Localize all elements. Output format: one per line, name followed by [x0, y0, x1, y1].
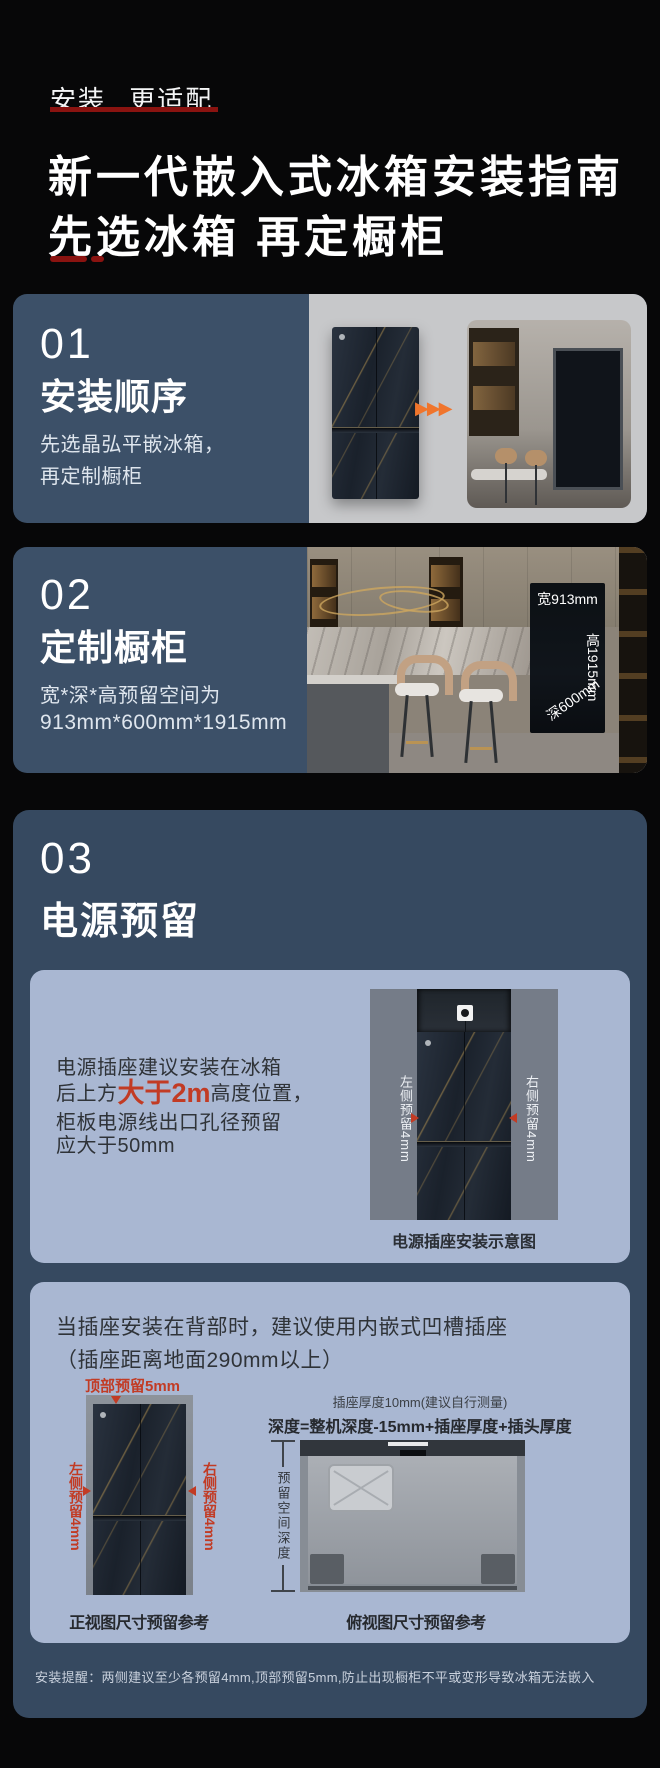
power-socket-icon	[457, 1005, 473, 1021]
top-view-image	[300, 1440, 525, 1592]
bar-stool	[495, 448, 517, 504]
section-01-title: 安装顺序	[40, 368, 188, 420]
stool-leg	[535, 465, 537, 505]
bar-stool	[525, 450, 547, 506]
brand-logo-icon	[425, 1040, 431, 1046]
wine-cabinet	[469, 328, 519, 436]
top-arrow-icon	[111, 1396, 121, 1404]
left-arrow-icon	[83, 1486, 91, 1496]
measure-cap	[271, 1590, 295, 1592]
hinge-block	[481, 1554, 515, 1584]
power-socket-card: 电源插座建议安装在冰箱 后上方大于2m高度位置， 柜板电源线出口孔径预留 应大于…	[30, 970, 630, 1263]
wine-shelf-glow	[473, 342, 515, 366]
installation-order-illustration: ▶▶▶	[309, 294, 647, 523]
fridge-niche: 宽913mm 高1915mm 深600mm	[530, 583, 605, 733]
page-title-line2: 先选冰箱 再定橱柜	[48, 201, 448, 265]
brand-logo-icon	[339, 334, 345, 340]
wine-shelf-glow	[431, 565, 460, 587]
right-clearance-label: 右侧预留4mm	[200, 1462, 220, 1551]
custom-cabinet-photo: 宽913mm 高1915mm 深600mm	[307, 547, 647, 773]
cabinet-frame	[86, 1395, 193, 1595]
installation-reminder: 安装提醒：两侧建议至少各预留4mm,顶部预留5mm,防止出现橱柜不平或变形导致冰…	[35, 1667, 595, 1686]
socket-text-highlight: 大于2m	[118, 1078, 211, 1108]
left-clearance-label: 左侧预留4mm	[66, 1462, 86, 1551]
front-view-caption: 正视图尺寸预留参考	[69, 1609, 209, 1633]
depth-measure: 预留空间深度	[266, 1440, 300, 1592]
stool-leg	[400, 695, 408, 757]
socket-install-diagram: 左侧预留4mm 右侧预留4mm	[370, 989, 558, 1220]
recess-heading-line1: 当插座安装在背部时，建议使用内嵌式凹槽插座	[56, 1311, 508, 1341]
socket-text-line2: 后上方大于2m高度位置，	[56, 1071, 313, 1110]
stool-leg	[464, 701, 472, 763]
title-dash-short	[91, 256, 104, 262]
section-02-body-line1: 宽*深*高预留空间为	[40, 679, 221, 708]
depth-formula: 深度=整机深度-15mm+插座厚度+插头厚度	[268, 1413, 598, 1437]
forward-arrows-icon: ▶▶▶	[415, 398, 451, 419]
right-arrow-icon	[188, 1486, 196, 1496]
recess-heading-line2: （插座距离地面290mm以上）	[56, 1344, 344, 1374]
stool-footrest	[406, 741, 428, 744]
section-02-card: 02 定制橱柜 宽*深*高预留空间为 913mm*600mm*1915mm	[13, 547, 647, 773]
right-arrow-icon	[509, 1113, 517, 1123]
stool-leg	[425, 695, 433, 757]
kitchen-island	[307, 684, 389, 773]
measure-line	[282, 1442, 284, 1467]
top-clearance-label: 顶部预留5mm	[85, 1375, 180, 1396]
socket-text-line2-pre: 后上方	[56, 1083, 118, 1105]
right-clearance-label: 右侧预留4mm	[522, 1075, 541, 1163]
section-01-card: 01 安装顺序 先选晶弘平嵌冰箱， 再定制橱柜 ▶▶▶	[13, 294, 647, 523]
page-title-line1: 新一代嵌入式冰箱安装指南	[48, 141, 624, 205]
socket-text-line2-post: 高度位置，	[211, 1083, 314, 1105]
stool-seat	[395, 683, 439, 696]
kitchen-photo	[467, 320, 631, 508]
stool-seat	[525, 450, 547, 466]
island-countertop	[307, 675, 403, 684]
section-02-number: 02	[40, 571, 94, 620]
socket-text-line4: 应大于50mm	[56, 1129, 175, 1158]
stool-leg	[505, 463, 507, 503]
socket-plate	[388, 1442, 428, 1446]
fridge-image	[417, 1032, 511, 1220]
stool-footrest	[470, 747, 492, 750]
installation-guide-page: 安装 更适配 新一代嵌入式冰箱安装指南 先选冰箱 再定橱柜 01 安装顺序 先选…	[0, 0, 660, 1768]
socket-cover-plate	[328, 1464, 394, 1512]
eyebrow-underline	[50, 107, 218, 112]
section-01-body-line2: 再定制橱柜	[40, 460, 143, 489]
section-03-title: 电源预留	[40, 890, 200, 945]
wine-shelf-glow	[312, 565, 336, 587]
recessed-socket-card: 当插座安装在背部时，建议使用内嵌式凹槽插座 （插座距离地面290mm以上） 顶部…	[30, 1282, 630, 1643]
section-01-number: 01	[40, 320, 94, 369]
top-view-caption: 俯视图尺寸预留参考	[346, 1609, 486, 1633]
wine-shelf-glow	[473, 386, 515, 410]
stool-seat	[495, 448, 517, 464]
title-dash-long	[50, 256, 87, 262]
left-arrow-icon	[411, 1113, 419, 1123]
tall-display-cabinet	[619, 547, 647, 773]
hinge-block	[310, 1554, 344, 1584]
wine-shelf	[310, 559, 338, 627]
measure-line	[282, 1565, 284, 1590]
section-02-title: 定制橱柜	[40, 619, 188, 671]
front-edge-bar	[308, 1586, 517, 1590]
section-01-body-line1: 先选晶弘平嵌冰箱，	[40, 428, 225, 457]
niche-width-label: 宽913mm	[530, 589, 605, 609]
socket-hole	[461, 1009, 469, 1017]
fridge-image	[93, 1404, 186, 1595]
section-03-card: 03 电源预留 电源插座建议安装在冰箱 后上方大于2m高度位置， 柜板电源线出口…	[13, 810, 647, 1718]
socket-thickness-note: 插座厚度10mm(建议自行测量)	[330, 1392, 510, 1411]
bar-stool	[459, 661, 503, 767]
socket-diagram-caption: 电源插座安装示意图	[364, 1228, 564, 1252]
depth-measure-label: 预留空间深度	[274, 1467, 293, 1565]
brand-logo-icon	[100, 1412, 106, 1418]
power-cord	[465, 1021, 466, 1032]
stool-leg	[489, 701, 497, 763]
section-02-body-line2: 913mm*600mm*1915mm	[40, 711, 287, 735]
bar-stool	[395, 655, 439, 761]
stool-seat	[459, 689, 503, 702]
fridge-niche-opening	[553, 348, 623, 490]
fridge-image	[332, 327, 419, 499]
section-03-number: 03	[40, 834, 95, 884]
